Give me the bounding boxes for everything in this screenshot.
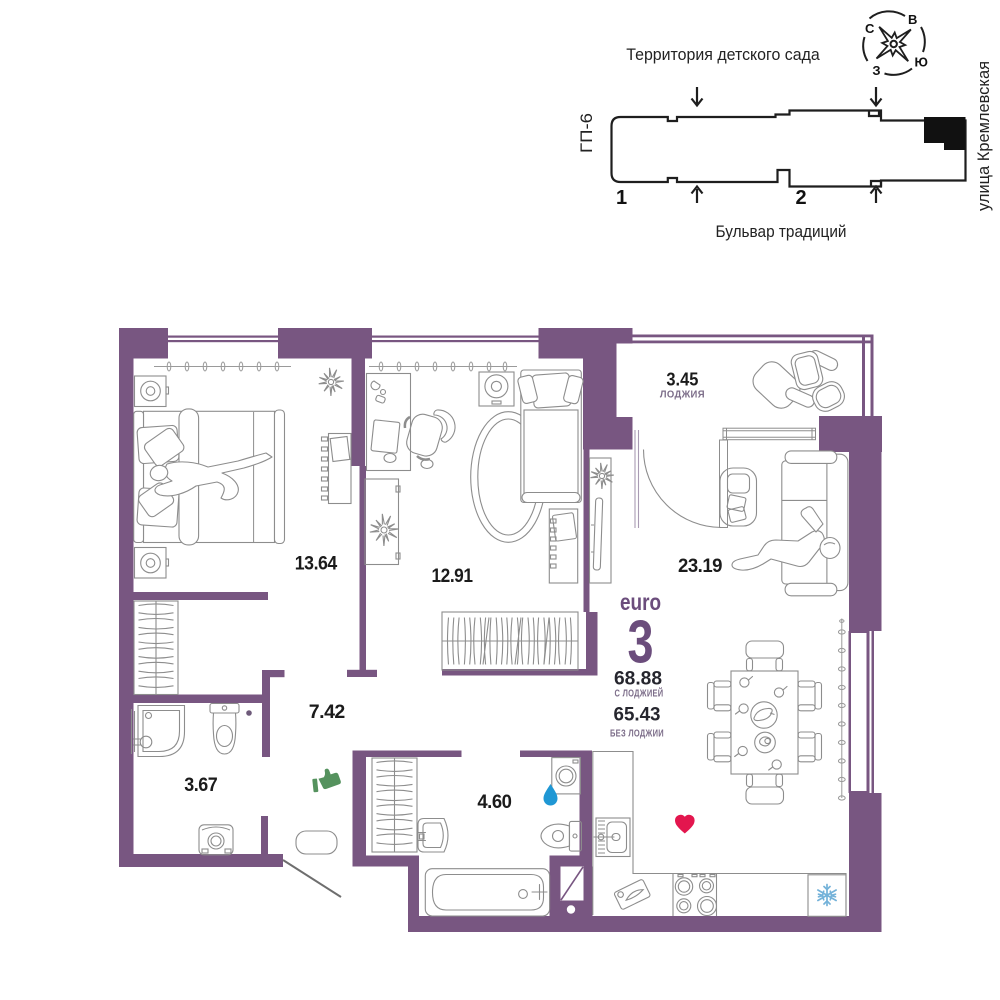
svg-text:З: З [872,63,880,78]
svg-text:4.60: 4.60 [477,792,511,813]
svg-text:ЛОДЖИЯ: ЛОДЖИЯ [660,389,705,401]
svg-text:ГП-6: ГП-6 [578,113,596,153]
svg-text:23.19: 23.19 [678,556,722,577]
svg-text:3.67: 3.67 [184,775,217,796]
svg-text:Бульвар традиций: Бульвар традиций [716,223,847,241]
svg-text:С ЛОДЖИЕЙ: С ЛОДЖИЕЙ [615,687,664,700]
svg-text:65.43: 65.43 [614,705,661,726]
svg-text:68.88: 68.88 [614,669,662,690]
svg-text:13.64: 13.64 [295,554,338,575]
svg-text:Ю: Ю [914,55,927,70]
svg-text:В: В [908,12,917,27]
svg-text:БЕЗ ЛОДЖИИ: БЕЗ ЛОДЖИИ [610,728,664,740]
svg-text:С: С [865,21,875,36]
svg-text:3: 3 [627,609,653,676]
svg-text:2: 2 [795,187,806,209]
svg-text:1: 1 [616,187,627,209]
svg-text:12.91: 12.91 [432,566,474,587]
svg-text:улица Кремлевская: улица Кремлевская [975,61,993,211]
svg-text:7.42: 7.42 [309,702,345,723]
svg-text:Территория детского сада: Территория детского сада [626,46,820,64]
svg-text:3.45: 3.45 [666,370,698,390]
